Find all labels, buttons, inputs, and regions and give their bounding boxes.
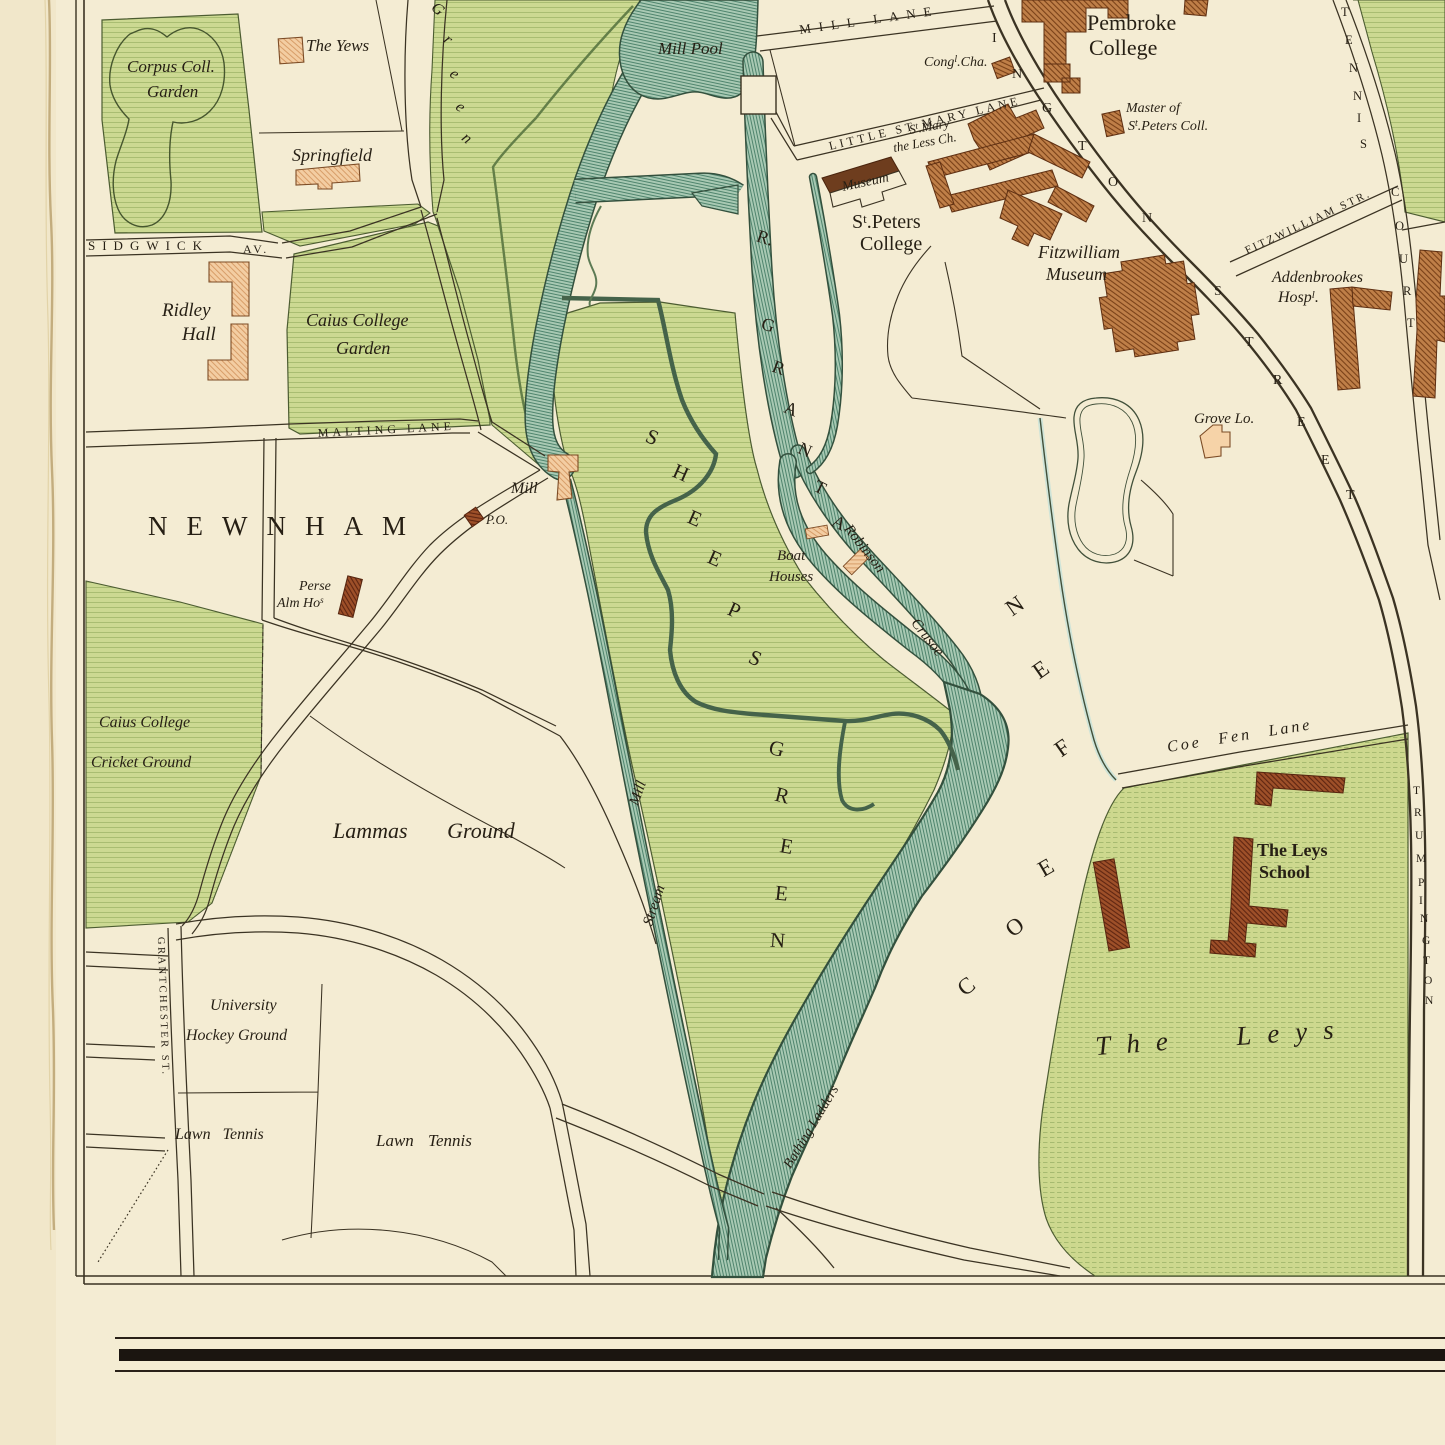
svg-text:Addenbrookes: Addenbrookes (1271, 269, 1363, 286)
svg-text:College: College (860, 233, 922, 255)
svg-text:School: School (1259, 862, 1310, 882)
svg-text:C: C (1391, 185, 1399, 199)
svg-text:Garden: Garden (336, 338, 390, 358)
svg-text:St.Peters Coll.: St.Peters Coll. (1128, 118, 1208, 134)
svg-text:S: S (1360, 137, 1367, 151)
svg-text:Springfield: Springfield (292, 145, 373, 165)
svg-text:SIDGWICK: SIDGWICK (88, 238, 209, 253)
svg-text:Perse: Perse (298, 579, 331, 594)
svg-text:P: P (1418, 877, 1424, 889)
svg-text:Hall: Hall (181, 324, 216, 345)
svg-text:I: I (1357, 111, 1361, 125)
svg-text:M: M (1416, 853, 1426, 865)
svg-text:G: G (1422, 935, 1430, 947)
svg-text:Lawn Tennis: Lawn Tennis (375, 1131, 472, 1150)
svg-text:NEWNHAM: NEWNHAM (148, 511, 425, 541)
svg-text:S: S (1214, 284, 1222, 299)
svg-text:Cricket Ground: Cricket Ground (91, 754, 192, 771)
svg-text:N: N (1425, 995, 1434, 1007)
svg-text:Master of: Master of (1125, 101, 1182, 116)
svg-text:N: N (1420, 913, 1429, 925)
svg-text:T: T (1078, 139, 1087, 154)
svg-text:Boat: Boat (777, 548, 806, 564)
svg-text:Hockey Ground: Hockey Ground (185, 1027, 288, 1044)
svg-text:E: E (1321, 453, 1330, 468)
svg-text:Caius College: Caius College (99, 714, 190, 731)
svg-text:Lawn Tennis: Lawn Tennis (174, 1126, 264, 1143)
svg-text:E: E (774, 880, 789, 905)
svg-text:Fitzwilliam: Fitzwilliam (1037, 242, 1120, 262)
svg-text:N: N (1349, 61, 1358, 75)
svg-text:AV.: AV. (243, 242, 269, 256)
svg-text:Mill: Mill (510, 480, 538, 497)
svg-text:O: O (1424, 975, 1432, 987)
svg-text:I: I (1419, 895, 1423, 907)
svg-text:T: T (1341, 5, 1349, 19)
svg-text:Corpus Coll.: Corpus Coll. (127, 57, 215, 76)
svg-text:Grove Lo.: Grove Lo. (1194, 411, 1254, 427)
svg-text:Pembroke: Pembroke (1087, 10, 1176, 35)
svg-text:Mill Pool: Mill Pool (657, 39, 723, 58)
svg-text:Alm Hos: Alm Hos (276, 595, 324, 611)
svg-text:T: T (1407, 316, 1415, 330)
svg-text:College: College (1089, 35, 1157, 60)
svg-text:O: O (1395, 219, 1404, 233)
svg-text:Garden: Garden (147, 82, 198, 101)
svg-text:R: R (1403, 284, 1412, 298)
svg-text:Ridley: Ridley (161, 300, 211, 321)
svg-text:O: O (1108, 175, 1118, 190)
svg-text:N: N (1353, 89, 1362, 103)
svg-text:St.Peters: St.Peters (852, 211, 921, 233)
svg-text:N: N (1142, 211, 1152, 226)
svg-text:T: T (1346, 488, 1355, 503)
svg-text:Caius College: Caius College (306, 310, 409, 330)
svg-text:University: University (210, 997, 278, 1014)
svg-text:T: T (1245, 335, 1254, 350)
svg-text:R: R (1273, 373, 1283, 388)
svg-text:G: G (1042, 101, 1052, 116)
svg-text:Museum: Museum (1045, 264, 1107, 284)
svg-text:T: T (1423, 955, 1430, 967)
svg-text:E: E (1297, 415, 1306, 430)
svg-text:U: U (1399, 252, 1408, 266)
svg-text:R: R (1414, 807, 1422, 819)
svg-text:N: N (1012, 67, 1022, 82)
svg-text:N: N (769, 928, 786, 953)
svg-text:Lammas Ground: Lammas Ground (332, 818, 516, 843)
svg-text:T: T (1413, 785, 1420, 797)
svg-text:I: I (992, 31, 997, 46)
svg-text:E: E (1345, 33, 1353, 47)
svg-text:Houses: Houses (768, 569, 813, 585)
svg-text:P.O.: P.O. (485, 512, 508, 527)
svg-text:The Leys: The Leys (1257, 840, 1328, 860)
svg-text:U: U (1415, 830, 1424, 842)
svg-text:The Yews: The Yews (306, 36, 370, 55)
